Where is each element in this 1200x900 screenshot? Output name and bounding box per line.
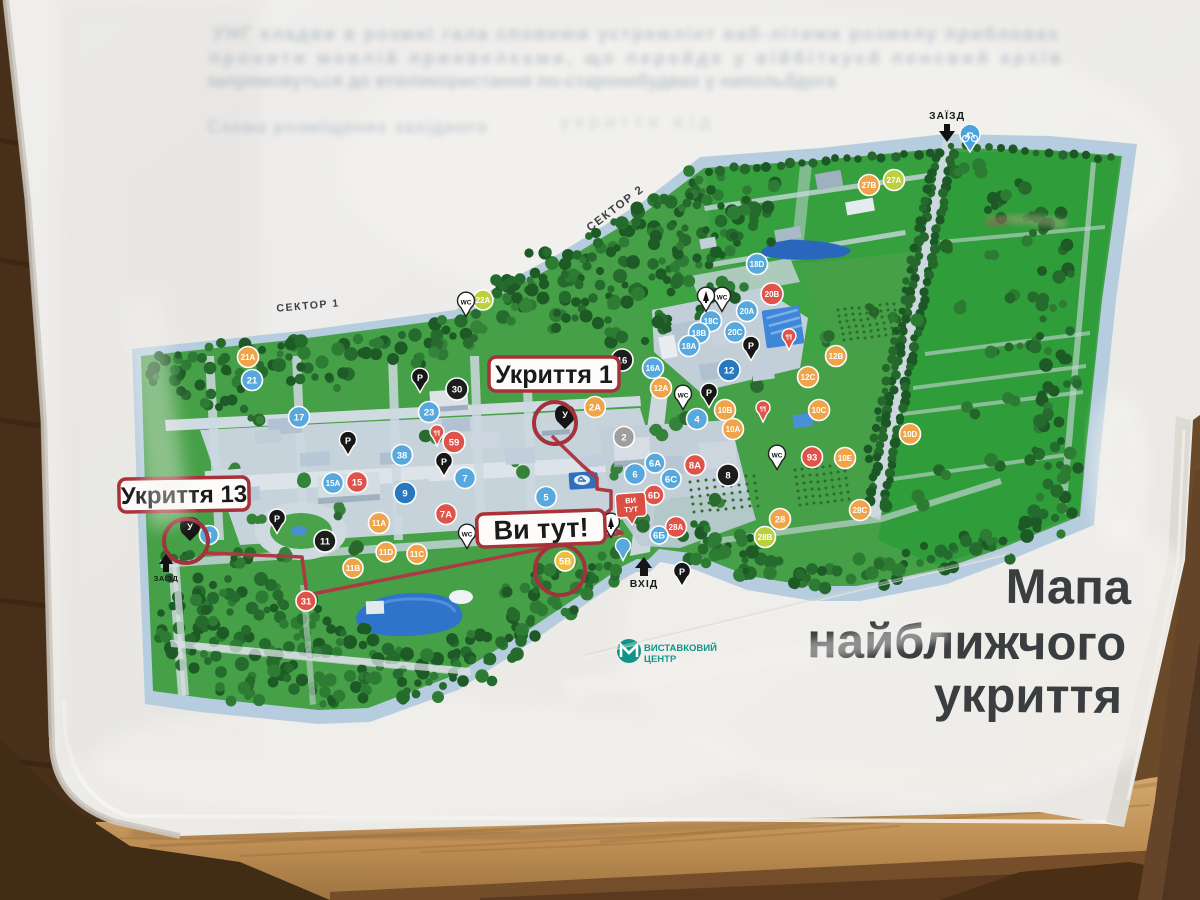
svg-text:28: 28 xyxy=(775,514,786,525)
svg-text:ВИСТАВКОВИЙ: ВИСТАВКОВИЙ xyxy=(644,642,717,654)
svg-text:УНГ кладви в розмні гала сповн: УНГ кладви в розмні гала сповнюи устремл… xyxy=(213,24,1058,44)
svg-text:27A: 27A xyxy=(887,176,902,185)
svg-text:28B: 28B xyxy=(758,533,773,542)
svg-text:WC: WC xyxy=(772,452,783,459)
svg-text:ЗАЇЗД: ЗАЇЗД xyxy=(929,109,965,122)
svg-text:11C: 11C xyxy=(410,550,424,559)
svg-text:WC: WC xyxy=(678,392,689,399)
svg-text:22A: 22A xyxy=(476,296,491,305)
svg-text:У: У xyxy=(187,522,193,532)
svg-text:12: 12 xyxy=(724,365,735,376)
svg-text:P: P xyxy=(417,373,423,383)
svg-text:20B: 20B xyxy=(765,290,780,299)
svg-text:8A: 8A xyxy=(689,460,701,471)
svg-text:10C: 10C xyxy=(812,406,827,415)
svg-text:9: 9 xyxy=(402,488,407,499)
svg-text:Укриття 1: Укриття 1 xyxy=(495,361,613,389)
svg-text:P: P xyxy=(441,457,447,467)
svg-text:укриття: укриття xyxy=(933,668,1122,724)
svg-text:P: P xyxy=(748,341,754,351)
svg-text:2: 2 xyxy=(621,432,626,443)
svg-text:21: 21 xyxy=(247,375,258,386)
svg-text:WC: WC xyxy=(717,294,728,301)
svg-text:ТУТ: ТУТ xyxy=(624,504,639,514)
svg-text:15A: 15A xyxy=(326,479,341,488)
svg-text:P: P xyxy=(274,514,280,524)
svg-text:12B: 12B xyxy=(829,352,844,361)
svg-text:11D: 11D xyxy=(379,548,393,557)
svg-text:59: 59 xyxy=(449,437,460,448)
svg-text:7A: 7A xyxy=(440,509,452,520)
svg-text:¶¶: ¶¶ xyxy=(760,407,767,413)
svg-text:30: 30 xyxy=(452,384,463,395)
svg-text:10B: 10B xyxy=(718,406,733,415)
svg-text:11B: 11B xyxy=(346,564,360,573)
svg-text:18A: 18A xyxy=(682,342,697,351)
svg-text:Ви тут!: Ви тут! xyxy=(493,512,589,545)
svg-text:5: 5 xyxy=(543,492,549,503)
svg-text:P: P xyxy=(706,388,712,398)
svg-text:Мапа: Мапа xyxy=(1005,560,1132,615)
svg-text:6C: 6C xyxy=(665,474,677,485)
svg-text:6D: 6D xyxy=(648,490,660,501)
svg-text:21A: 21A xyxy=(241,353,256,362)
svg-text:P: P xyxy=(679,567,685,577)
svg-text:18D: 18D xyxy=(750,260,765,269)
svg-text:6: 6 xyxy=(632,469,637,480)
svg-text:ЗАЇЗД: ЗАЇЗД xyxy=(154,574,179,583)
svg-text:10D: 10D xyxy=(903,430,918,439)
svg-text:27B: 27B xyxy=(862,181,877,190)
svg-text:8: 8 xyxy=(725,470,730,481)
svg-text:6A: 6A xyxy=(649,458,661,469)
svg-text:WC: WC xyxy=(462,531,473,538)
svg-text:ВХІД: ВХІД xyxy=(630,578,659,590)
svg-text:11A: 11A xyxy=(372,519,386,528)
svg-text:5B: 5B xyxy=(559,556,571,567)
svg-text:17: 17 xyxy=(294,412,305,423)
svg-text:12C: 12C xyxy=(801,373,816,382)
svg-text:38: 38 xyxy=(397,450,408,461)
svg-text:31: 31 xyxy=(301,596,312,607)
svg-text:2A: 2A xyxy=(589,402,601,413)
svg-text:28A: 28A xyxy=(669,523,684,532)
svg-text:12A: 12A xyxy=(654,384,669,393)
svg-text:7: 7 xyxy=(462,473,467,484)
svg-text:¶¶: ¶¶ xyxy=(786,335,793,341)
svg-text:20C: 20C xyxy=(728,328,743,337)
svg-text:10E: 10E xyxy=(838,454,853,463)
svg-text:20A: 20A xyxy=(740,307,755,316)
svg-text:укриття від: укриття від xyxy=(560,112,711,132)
svg-text:93: 93 xyxy=(807,452,818,463)
svg-text:Схема розміщених західного: Схема розміщених західного xyxy=(207,117,487,137)
svg-text:16A: 16A xyxy=(646,364,661,373)
svg-text:15: 15 xyxy=(352,477,363,488)
svg-text:10A: 10A xyxy=(726,425,741,434)
svg-text:¶¶: ¶¶ xyxy=(434,431,441,437)
svg-text:23: 23 xyxy=(424,407,435,418)
svg-text:28C: 28C xyxy=(853,506,868,515)
svg-text:4: 4 xyxy=(694,414,700,425)
svg-text:11: 11 xyxy=(320,536,331,547)
svg-text:6Б: 6Б xyxy=(653,530,665,541)
svg-text:У: У xyxy=(562,410,568,420)
svg-text:P: P xyxy=(345,436,351,446)
svg-text:запрямовуться до втиликористан: запрямовуться до втиликористання по-стар… xyxy=(206,71,837,91)
svg-text:WC: WC xyxy=(461,299,472,306)
svg-text:пронити мовлій принвелками, що: пронити мовлій принвелками, що перейде у… xyxy=(209,48,1061,68)
